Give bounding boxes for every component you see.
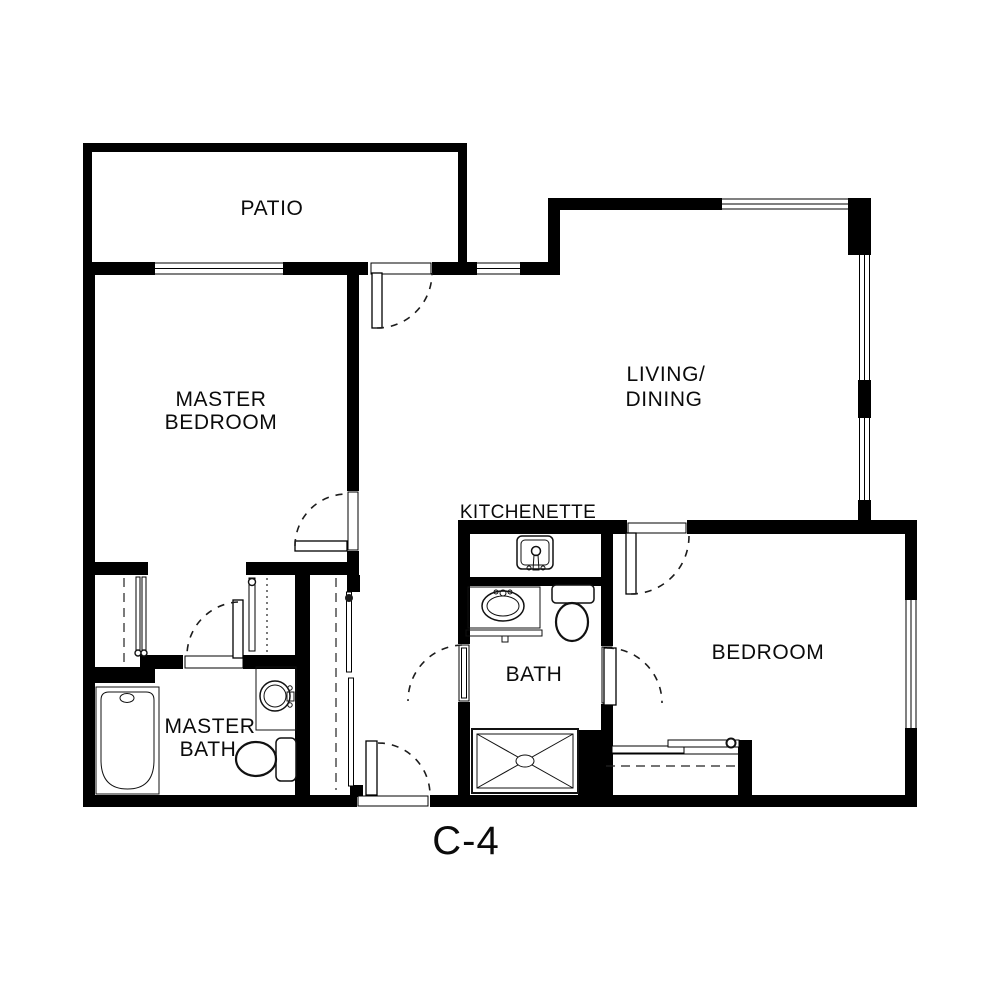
master-bath-door	[233, 600, 243, 658]
patio-wall-left	[83, 143, 92, 265]
bath-label: BATH	[506, 663, 563, 686]
floor-plan-canvas: PATIO MASTER BEDROOM LIVING/ DINING KITC…	[0, 0, 1000, 1000]
cased-opening-jambs	[148, 562, 247, 575]
patio-label: PATIO	[241, 197, 304, 220]
floor-plan-drawing: PATIO MASTER BEDROOM LIVING/ DINING KITC…	[0, 0, 1000, 1000]
window-living-top	[722, 198, 848, 210]
kitchenette-sink	[517, 536, 553, 570]
bath-toilet	[552, 585, 594, 641]
bathtub	[96, 687, 159, 794]
bedroom-door	[626, 533, 636, 594]
window-living-right-lower	[858, 418, 871, 500]
master-bedroom-label-line2: BEDROOM	[165, 411, 278, 434]
bath-vanity-sink	[466, 587, 542, 642]
living-dining-label-line2: DINING	[625, 388, 702, 411]
window-entry-side	[477, 262, 520, 275]
bedroom-closet	[606, 739, 739, 767]
bedroom-door-opening	[628, 523, 686, 533]
master-bedroom-label-line1: MASTER	[175, 388, 266, 411]
plan-title: C-4	[432, 819, 499, 863]
hall-closet	[336, 578, 354, 790]
entry-door	[366, 741, 377, 795]
bedroom-label: BEDROOM	[712, 641, 825, 664]
master-bath-label-line1: MASTER	[164, 715, 255, 738]
window-living-right-upper	[858, 255, 871, 380]
living-dining-label-line1: LIVING/	[627, 363, 706, 386]
window-bedroom	[905, 600, 917, 728]
master-bedroom-door-opening	[348, 492, 358, 550]
walls	[83, 143, 917, 807]
walkin-closet-right	[249, 578, 268, 652]
kitchenette-label: KITCHENETTE	[460, 502, 596, 523]
walkin-closet-left	[124, 577, 147, 664]
bath-bedroom-door	[604, 648, 616, 705]
hall-bath-door-swing	[408, 645, 462, 701]
entry-door-threshold	[358, 796, 428, 806]
window-master-bedroom	[155, 262, 283, 275]
patio-wall-top	[83, 143, 467, 152]
master-bath-sink	[256, 667, 296, 730]
exterior-wall-left	[83, 262, 95, 807]
patio-wall-right	[458, 143, 467, 265]
shower	[472, 729, 578, 793]
master-bedroom-door	[295, 541, 347, 551]
master-bath-label-line2: BATH	[180, 738, 237, 761]
exterior-wall-bottom	[83, 795, 357, 807]
patio-entry-door	[372, 273, 382, 328]
master-bath-toilet	[236, 738, 296, 781]
